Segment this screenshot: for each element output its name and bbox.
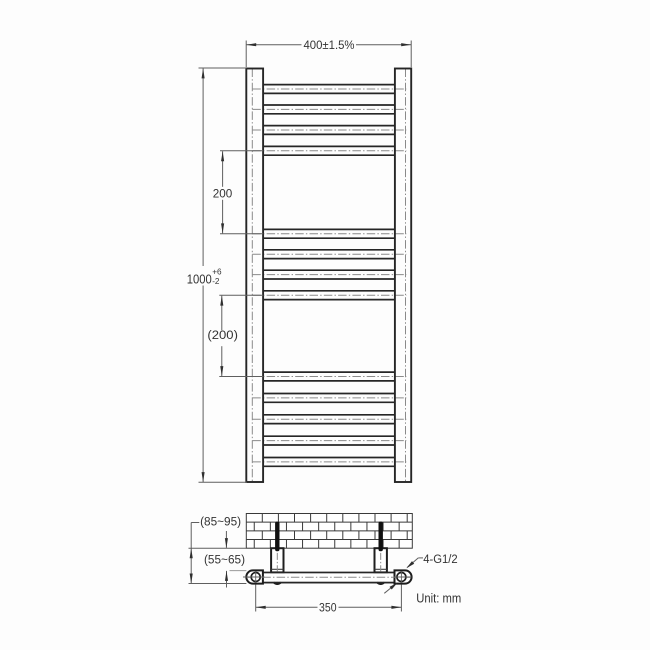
svg-text:+6: +6 [212,268,222,277]
svg-text:-2: -2 [212,277,220,286]
svg-text:Unit: mm: Unit: mm [416,591,461,606]
svg-text:(55~65): (55~65) [204,553,245,567]
svg-text:4-G1/2: 4-G1/2 [423,552,458,566]
svg-text:400±1.5%: 400±1.5% [304,38,355,52]
svg-text:350: 350 [319,601,337,615]
svg-text:(200): (200) [207,328,238,342]
svg-text:1000: 1000 [187,272,212,286]
svg-text:(85~95): (85~95) [200,515,241,529]
svg-text:200: 200 [213,187,233,201]
